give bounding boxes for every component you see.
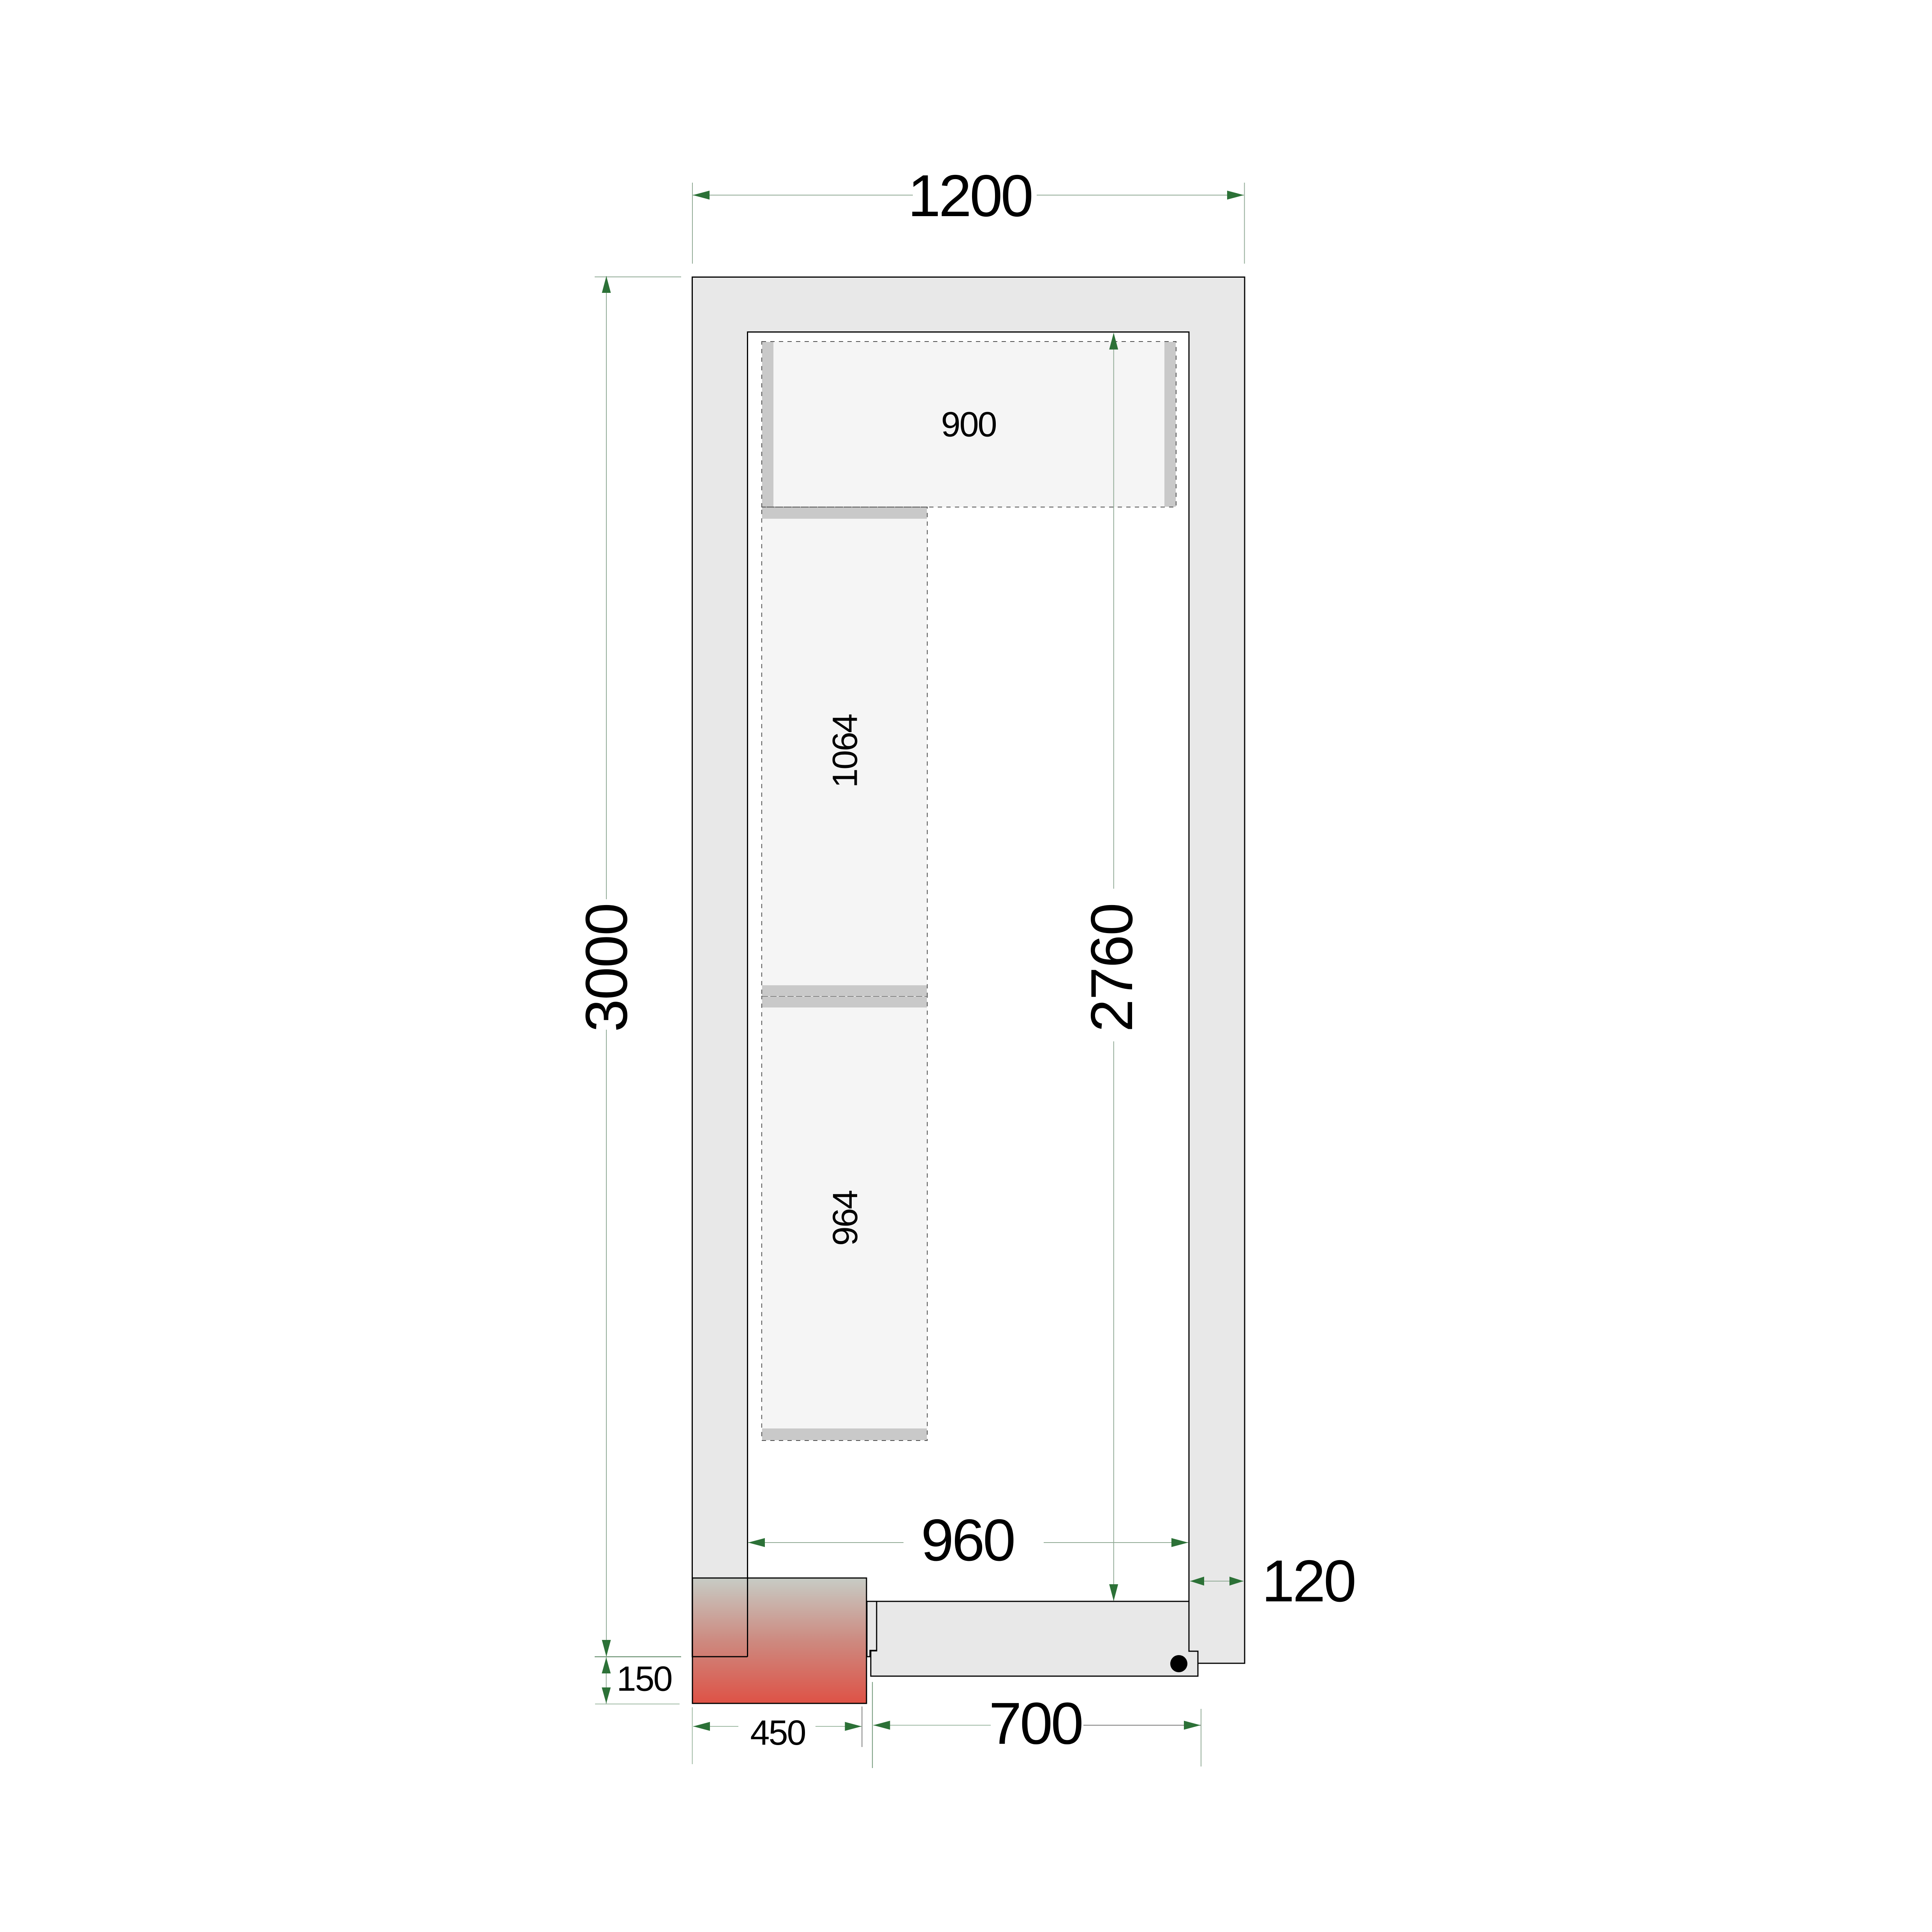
svg-text:964: 964 — [826, 1191, 865, 1246]
svg-text:120: 120 — [1262, 1548, 1355, 1614]
svg-text:900: 900 — [941, 405, 996, 444]
svg-text:2760: 2760 — [1079, 903, 1145, 1032]
svg-text:1200: 1200 — [908, 163, 1032, 229]
svg-text:450: 450 — [750, 1714, 805, 1752]
svg-text:700: 700 — [989, 1691, 1082, 1757]
svg-text:3000: 3000 — [574, 903, 640, 1032]
svg-text:1064: 1064 — [826, 714, 865, 788]
svg-text:150: 150 — [616, 1660, 671, 1699]
svg-text:960: 960 — [921, 1507, 1014, 1573]
